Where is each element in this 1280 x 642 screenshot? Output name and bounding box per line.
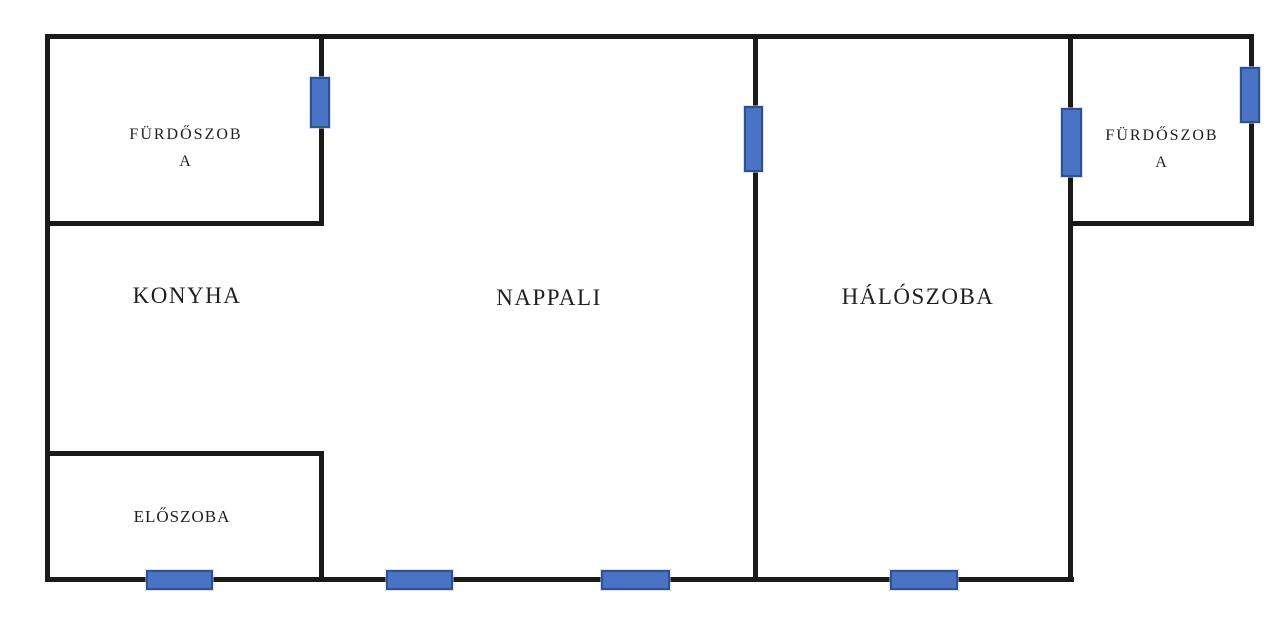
room-label-kitchen: KONYHA bbox=[133, 283, 242, 309]
wall-outer-left bbox=[45, 34, 50, 582]
window-bathroom-right bbox=[1240, 67, 1260, 123]
room-label-bathroom-right: FÜRDŐSZOB A bbox=[1105, 122, 1218, 176]
door-bedroom-bathroom bbox=[1061, 108, 1082, 177]
room-label-line: FÜRDŐSZOB bbox=[1105, 122, 1218, 149]
room-label-bathroom-left: FÜRDŐSZOB A bbox=[129, 121, 242, 175]
room-label-hallway: ELŐSZOBA bbox=[134, 507, 231, 527]
door-bedroom-bottom bbox=[890, 570, 958, 590]
wall-bath-right-outer bbox=[1249, 34, 1254, 226]
door-living-2 bbox=[601, 570, 670, 590]
room-label-living-room: NAPPALI bbox=[496, 285, 602, 311]
door-hall-entry bbox=[146, 570, 213, 590]
floor-plan: FÜRDŐSZOB A KONYHA NAPPALI HÁLÓSZOBA FÜR… bbox=[0, 0, 1280, 642]
room-label-line: A bbox=[1105, 149, 1218, 176]
wall-hall-top bbox=[45, 451, 324, 456]
room-label-line: FÜRDŐSZOB bbox=[129, 121, 242, 148]
room-label-bedroom: HÁLÓSZOBA bbox=[842, 284, 995, 310]
wall-bath-left-right bbox=[319, 34, 324, 226]
door-bathroom-left bbox=[310, 77, 330, 128]
room-label-line: A bbox=[129, 148, 242, 175]
door-living-1 bbox=[386, 570, 453, 590]
wall-bath-left-bottom bbox=[45, 221, 324, 226]
wall-bath-right-bottom bbox=[1068, 221, 1254, 226]
door-living-bedroom bbox=[744, 106, 763, 172]
wall-hall-right bbox=[319, 451, 324, 582]
